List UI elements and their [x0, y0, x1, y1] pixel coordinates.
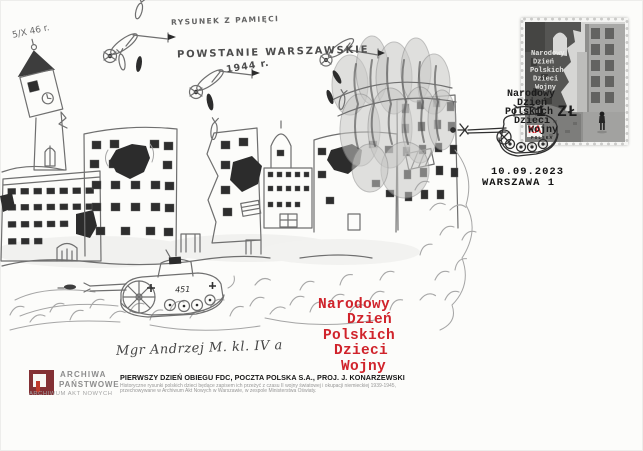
- svg-text:Dzieci: Dzieci: [533, 75, 558, 83]
- issue-title-line: Narodowy: [318, 297, 390, 313]
- issue-title-line: Polskich: [323, 328, 395, 344]
- stamp-perforation: [521, 17, 628, 21]
- damaged-building: [207, 128, 262, 243]
- overprint-last-word: WojnyKA: [527, 125, 542, 137]
- turret-building: [264, 121, 312, 228]
- publisher-name-line1: ARCHIWA: [60, 370, 107, 379]
- postmark-place: WARSZAWA 1: [482, 177, 555, 189]
- issue-title-line: Dzieci: [334, 343, 388, 359]
- burning-building: [332, 36, 458, 230]
- tank-marking: 451: [175, 285, 191, 295]
- overprint-wojny: Wojny: [528, 125, 558, 136]
- pencil-shading: [0, 234, 420, 268]
- stamp-country: POLSKA: [531, 137, 553, 141]
- church-drawing: [2, 36, 67, 172]
- svg-text:Polskich: Polskich: [530, 67, 564, 75]
- fdc-imprint-line: PIERWSZY DZIEŃ OBIEGU FDC, POCZTA POLSKA…: [120, 373, 405, 382]
- svg-text:Narodowy: Narodowy: [531, 50, 565, 58]
- stamp-perforation: [625, 18, 629, 145]
- publisher-subtitle: ARCHIWUM AKT NOWYCH: [29, 391, 112, 397]
- stamp-value: 1 ZŁ: [536, 103, 578, 121]
- publisher-name-line2: PAŃSTWOWE: [59, 380, 119, 389]
- fdc-description: Historyczne rysunki polskich dzieci będą…: [120, 384, 396, 396]
- fdc-description-line2: przechowywane w Archiwum Akt Nowych w Wa…: [120, 389, 396, 395]
- fdc-envelope: 451 5/X 46 r. RYSUNEK Z PAMIĘCI POWSTANI…: [0, 0, 643, 451]
- svg-text:Dzień: Dzień: [533, 58, 554, 66]
- issue-title-line: Dzień: [347, 312, 392, 328]
